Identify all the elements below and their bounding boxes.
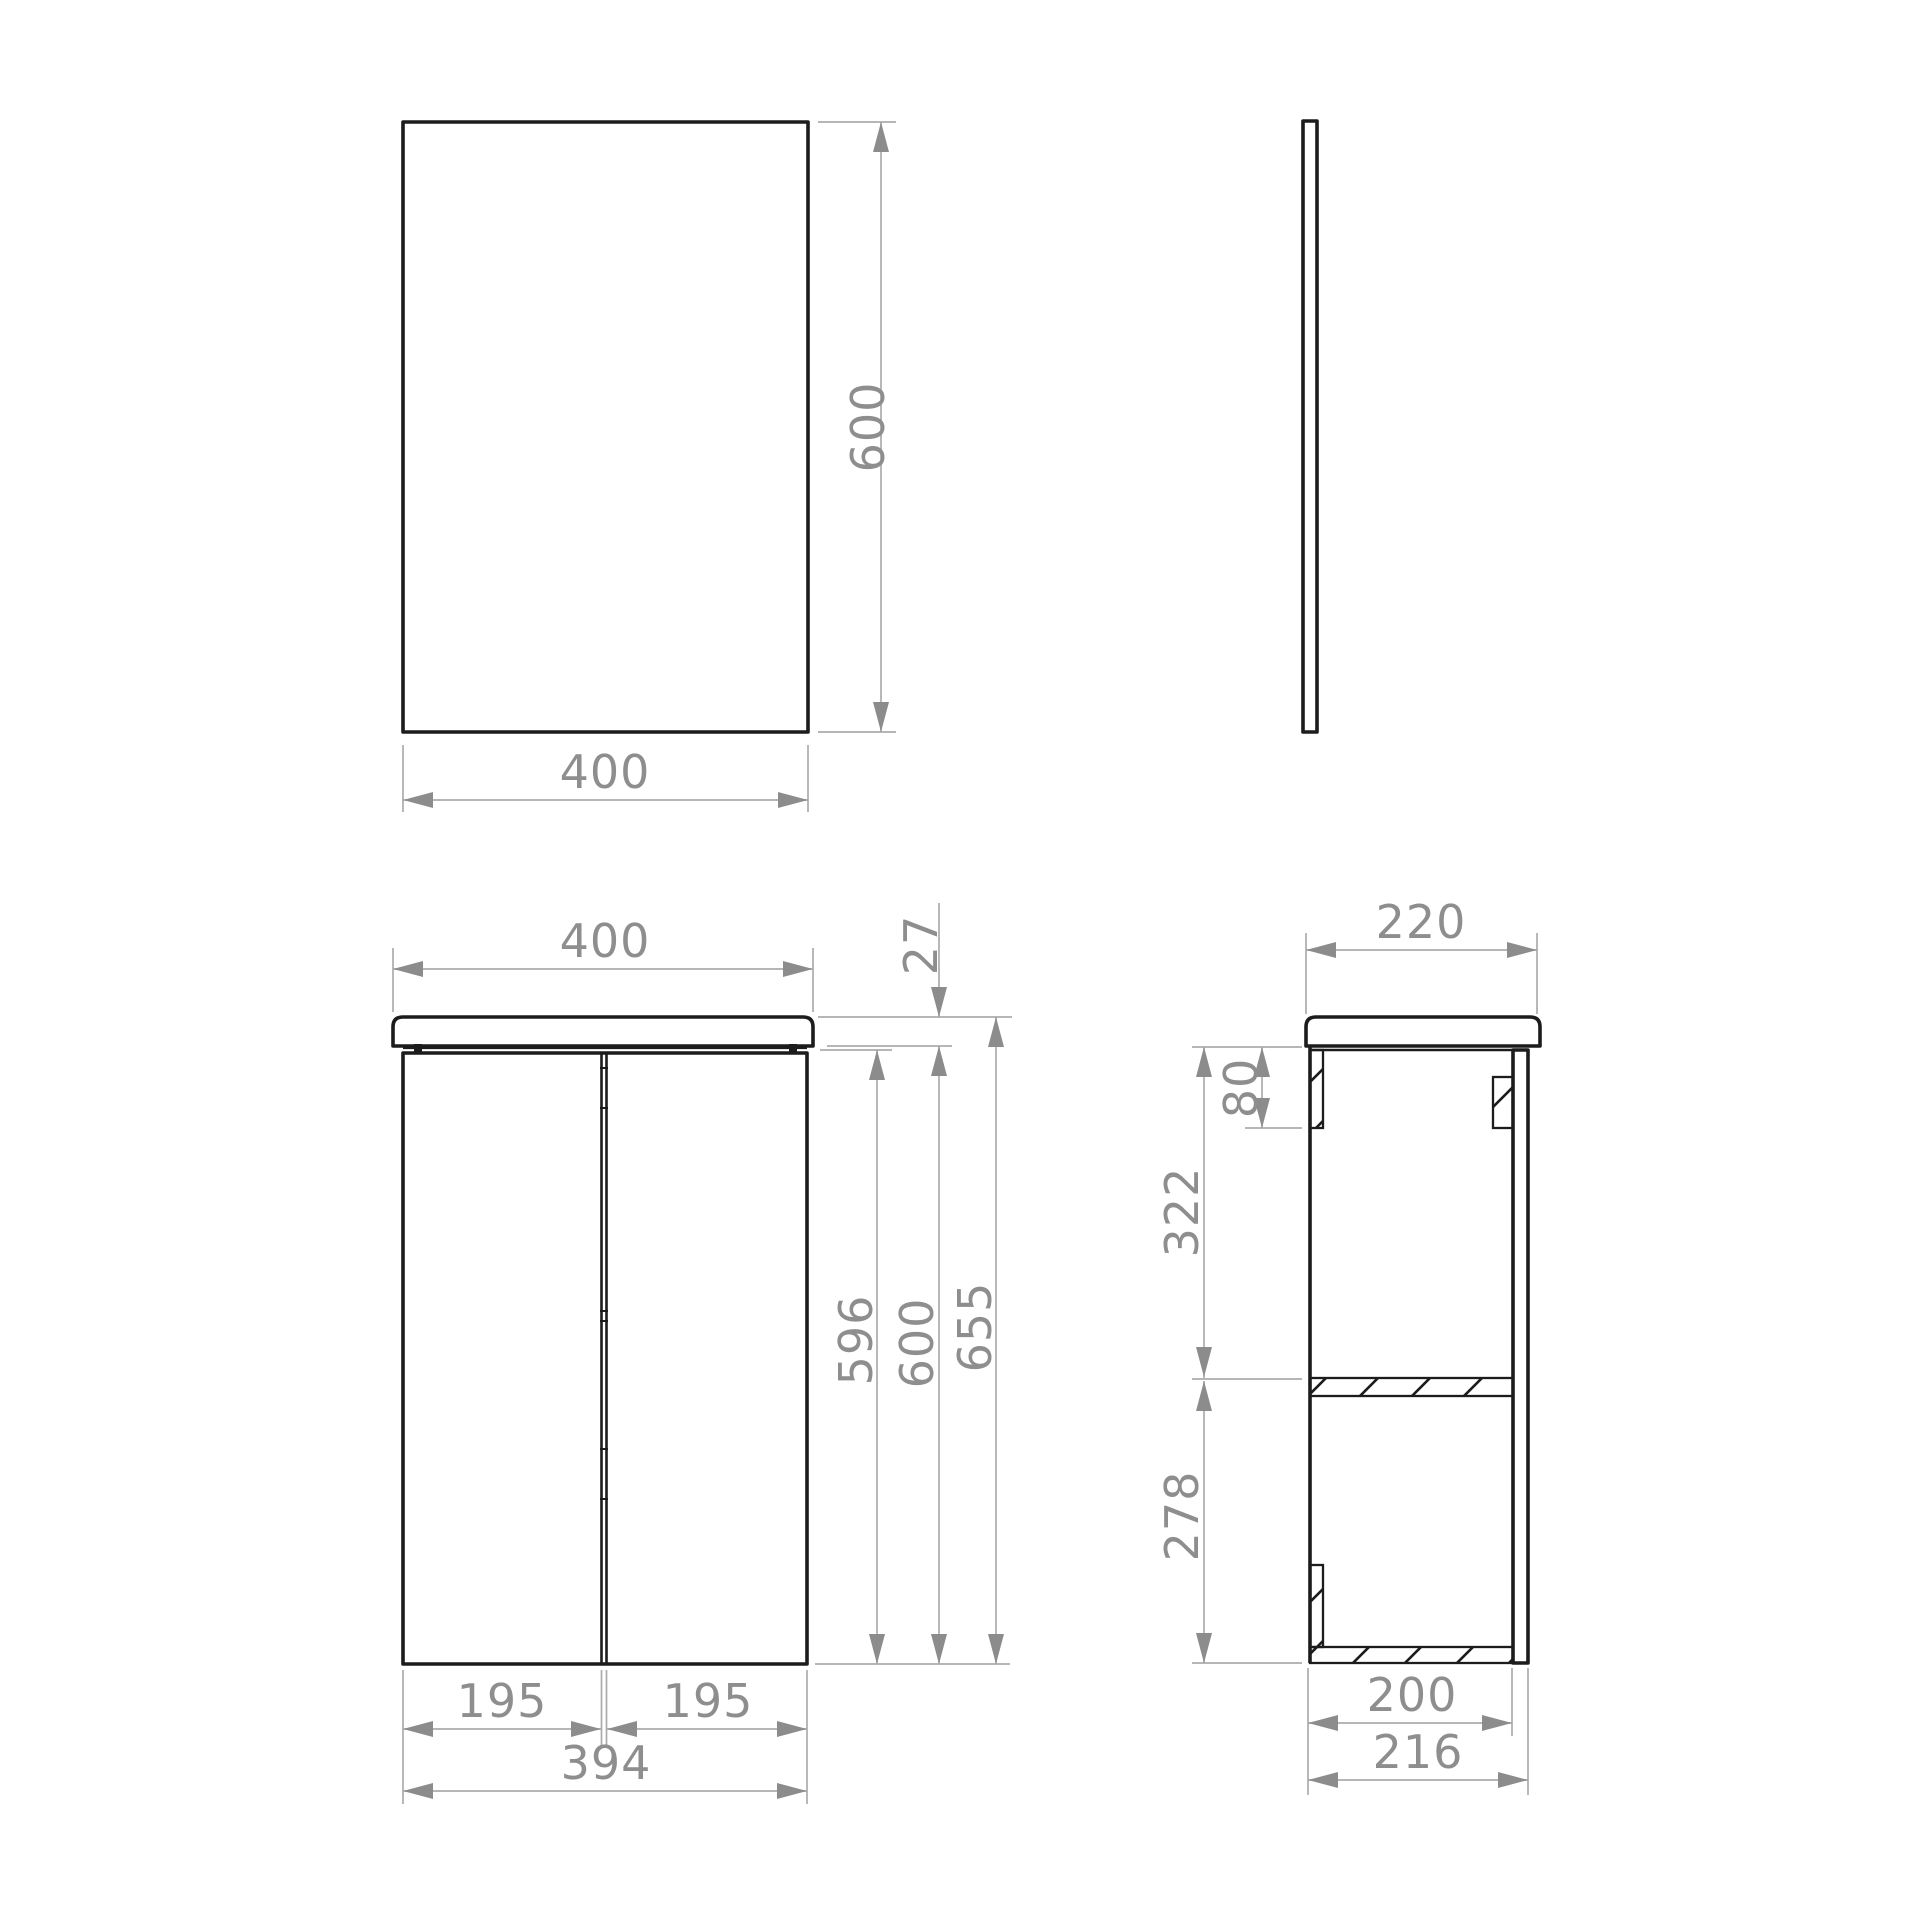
arrow-down-icon bbox=[1196, 1347, 1212, 1377]
rail-height-label: 80 bbox=[1214, 1058, 1268, 1119]
arrow-left-icon bbox=[1308, 1772, 1338, 1788]
bottom-hanging-rail bbox=[1310, 1565, 1323, 1647]
arrow-left-icon bbox=[1306, 942, 1336, 958]
arrow-down-icon bbox=[931, 1634, 947, 1664]
top-hanging-rail bbox=[1310, 1050, 1323, 1128]
worktop-thickness-dimension: 27 bbox=[818, 903, 1012, 1046]
worktop-thickness-label: 27 bbox=[894, 915, 948, 976]
arrow-up-icon bbox=[869, 1050, 885, 1080]
technical-drawing-canvas: 400 600 bbox=[0, 0, 1930, 1930]
arrow-left-icon bbox=[403, 1721, 433, 1737]
arrow-left-icon bbox=[393, 961, 423, 977]
arrow-up-icon bbox=[873, 122, 889, 152]
worktop-depth-dimension: 220 bbox=[1306, 895, 1537, 1014]
hinge-block bbox=[1493, 1077, 1513, 1128]
right-door-width-label: 195 bbox=[663, 1674, 754, 1728]
arrow-up-icon bbox=[988, 1017, 1004, 1047]
arrow-left-icon bbox=[403, 1783, 433, 1799]
lower-compartment-label: 278 bbox=[1155, 1471, 1209, 1562]
cabinet-side-view: 220 80 322 278 bbox=[1155, 895, 1540, 1795]
door-height-dimension: 596 bbox=[820, 1050, 892, 1664]
cabinet-width-dimension: 400 bbox=[393, 914, 813, 1012]
arrow-down-icon bbox=[869, 1634, 885, 1664]
cabinet-width-label: 400 bbox=[560, 914, 651, 968]
arrow-up-icon bbox=[931, 1046, 947, 1076]
arrow-down-icon bbox=[1196, 1633, 1212, 1663]
worktop-front-outline bbox=[393, 1017, 813, 1046]
arrow-left-icon bbox=[1308, 1715, 1338, 1731]
upper-compartment-label: 322 bbox=[1155, 1167, 1209, 1258]
worktop-depth-label: 220 bbox=[1376, 895, 1467, 949]
mirror-side-view bbox=[1303, 121, 1317, 732]
arrow-down-icon bbox=[873, 702, 889, 732]
mirror-height-dimension: 600 bbox=[818, 122, 896, 732]
doors-outline bbox=[403, 1053, 807, 1664]
lower-compartment-dimension: 278 bbox=[1155, 1381, 1302, 1663]
doors-overall-width-label: 394 bbox=[561, 1736, 652, 1790]
mirror-width-dimension: 400 bbox=[403, 745, 808, 812]
middle-shelf bbox=[1310, 1378, 1513, 1396]
overall-height-label: 655 bbox=[948, 1282, 1002, 1373]
carcass-height-label: 600 bbox=[890, 1298, 944, 1389]
overall-depth-label: 216 bbox=[1373, 1725, 1464, 1779]
arrow-up-icon bbox=[1196, 1047, 1212, 1077]
door-height-label: 596 bbox=[829, 1295, 883, 1386]
mirror-front-view: 400 600 bbox=[403, 122, 896, 812]
cabinet-dimension-drawing: 400 600 bbox=[0, 0, 1930, 1930]
left-door-width-label: 195 bbox=[457, 1674, 548, 1728]
arrow-left-icon bbox=[607, 1721, 637, 1737]
rail-height-dimension: 80 bbox=[1192, 1047, 1302, 1128]
carcass-height-dimension: 600 bbox=[890, 1046, 947, 1664]
arrow-right-icon bbox=[778, 792, 808, 808]
arrow-down-icon bbox=[931, 987, 947, 1017]
doors-overall-width-dimension: 394 bbox=[403, 1736, 807, 1799]
arrow-right-icon bbox=[777, 1783, 807, 1799]
bottom-panel bbox=[1310, 1647, 1513, 1663]
arrow-right-icon bbox=[783, 961, 813, 977]
arrow-left-icon bbox=[403, 792, 433, 808]
carcass-depth-label: 200 bbox=[1367, 1668, 1458, 1722]
mirror-side-outline bbox=[1303, 121, 1317, 732]
mirror-height-label: 600 bbox=[841, 382, 895, 473]
worktop-side-outline bbox=[1306, 1017, 1540, 1046]
door-side-outline bbox=[1513, 1050, 1528, 1663]
arrow-down-icon bbox=[988, 1634, 1004, 1664]
arrow-right-icon bbox=[1507, 942, 1537, 958]
arrow-right-icon bbox=[571, 1721, 601, 1737]
mirror-panel-outline bbox=[403, 122, 808, 732]
arrow-up-icon bbox=[1196, 1381, 1212, 1411]
arrow-right-icon bbox=[777, 1721, 807, 1737]
arrow-right-icon bbox=[1482, 1715, 1512, 1731]
arrow-right-icon bbox=[1498, 1772, 1528, 1788]
mirror-width-label: 400 bbox=[560, 745, 651, 799]
cabinet-front-view: 400 27 596 600 bbox=[393, 903, 1012, 1804]
